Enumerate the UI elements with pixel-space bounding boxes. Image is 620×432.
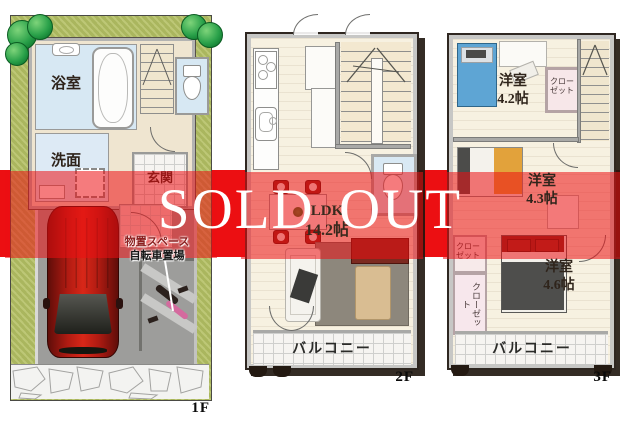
floor-2-label: 2F <box>372 369 414 386</box>
stove-icon <box>255 51 277 89</box>
balcony-foot <box>249 366 267 377</box>
cabinet <box>305 46 337 90</box>
staircase-2f-icon <box>341 42 411 142</box>
bedroom3-label: 洋室 4.6帖 <box>527 259 591 294</box>
bedroom1-size: 4.2帖 <box>481 91 545 109</box>
pillow-icon <box>507 239 531 252</box>
closet: クローゼット <box>453 273 487 335</box>
bedroom1-label: 洋室 4.2帖 <box>481 73 545 108</box>
toilet-room-1f <box>175 57 209 115</box>
wall <box>335 42 340 146</box>
closet-label: クローゼット <box>458 279 480 329</box>
door-arc-icon <box>150 127 175 152</box>
tree-icon <box>197 22 223 48</box>
balcony-foot <box>273 366 291 377</box>
staircase-3f-icon <box>581 41 609 141</box>
stone-path <box>11 364 209 399</box>
bedroom3-name: 洋室 <box>527 259 591 277</box>
bedroom1-name: 洋室 <box>481 73 545 91</box>
tree-icon <box>5 42 29 66</box>
tree-icon <box>27 14 53 40</box>
closet-label: ゼット <box>548 87 576 96</box>
bath-label: 浴室 <box>40 75 92 94</box>
bath-sink-icon <box>52 43 80 56</box>
sold-out-text: SOLD OUT <box>0 180 620 240</box>
kitchen-counter <box>253 48 279 170</box>
balcony-label: バルコニー <box>277 341 387 359</box>
bath-room: 浴室 <box>35 44 137 130</box>
tv-board-icon <box>351 238 409 264</box>
callout-line-icon <box>159 261 179 311</box>
cabinet <box>311 88 337 148</box>
floorplan-canvas: 浴室 洗面 玄関 <box>0 0 620 432</box>
floor-3-label: 3F <box>570 369 612 386</box>
balcony-3f: バルコニー <box>455 331 608 364</box>
floor-1-label: 1F <box>168 400 210 417</box>
balcony-foot <box>451 365 469 376</box>
coffee-table-icon <box>355 266 391 320</box>
wall <box>335 144 411 149</box>
kitchen-sink-icon <box>255 107 277 141</box>
desk-icon <box>499 41 547 67</box>
bicycle-parking-label: 自転車置場 <box>111 247 203 263</box>
balcony-label: バルコニー <box>477 341 587 359</box>
staircase-1f-icon <box>140 44 174 114</box>
bedroom3-size: 4.6帖 <box>527 277 591 295</box>
door-arc-icon <box>293 14 318 35</box>
closet-label: ゼット <box>455 252 481 261</box>
wall <box>453 137 579 142</box>
stone-pattern-icon <box>11 365 209 399</box>
pillow-icon <box>535 239 559 252</box>
balcony-2f: バルコニー <box>253 330 411 365</box>
bathtub-icon <box>92 47 134 129</box>
door-arc-icon <box>345 14 370 35</box>
